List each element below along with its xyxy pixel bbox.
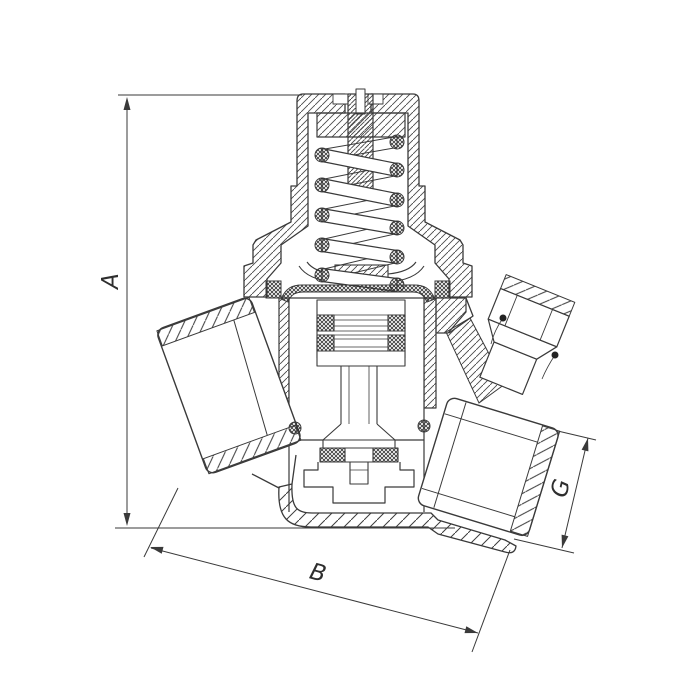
dimension-label-a: A [98,273,124,291]
spring-wire [315,148,329,162]
diaphragm-clamp-left [266,281,281,298]
spring-wire [390,221,404,235]
spring-wire [390,193,404,207]
bonnet-recess-left [333,94,348,104]
piston-oring-left-1 [317,315,334,331]
spring-wire [315,238,329,252]
seal-leader-2 [542,355,555,379]
seal-dot-2 [552,352,559,359]
piston-oring-left-2 [317,335,334,351]
seal-holder [345,448,373,462]
housing-oring-left [289,422,301,434]
screw-slot [356,89,365,114]
spring-wire [315,208,329,222]
spring-wire [315,268,329,282]
dim-b-arrow-right [465,626,479,633]
outlet-port [416,396,560,537]
piston-skirt [317,351,405,366]
piston-oring-right-2 [388,335,405,351]
spring-wire [315,178,329,192]
diaphragm-clamp-right [435,281,450,298]
seat-seal-right [373,448,398,462]
valve-technical-drawing: A B G [0,0,700,700]
dim-b-arrow-left [150,547,164,554]
upper-spring-seat [317,113,405,137]
dim-g-arrow-top [582,438,589,451]
spring-wire [390,135,404,149]
housing-wall-right-hatch [424,298,436,408]
spring-wire [390,250,404,264]
dim-g-arrow-bottom [562,535,569,548]
dim-a-arrow-top [124,97,131,110]
dim-a-arrow-bottom [124,513,131,526]
dimension-label-b: B [307,559,329,588]
dim-b-ext-right [472,550,510,652]
disc-plate [323,440,395,448]
dimension-label-g: G [547,477,576,500]
valve-stem [341,366,377,430]
seal-dot-1 [500,315,507,322]
spring-wire [390,163,404,177]
housing-oring-right [418,420,430,432]
dim-b-ext-left [144,488,178,557]
drawing-canvas: A B G [0,0,700,700]
retaining-nut [350,462,368,484]
seat-seal-left [320,448,345,462]
piston-oring-right-1 [388,315,405,331]
